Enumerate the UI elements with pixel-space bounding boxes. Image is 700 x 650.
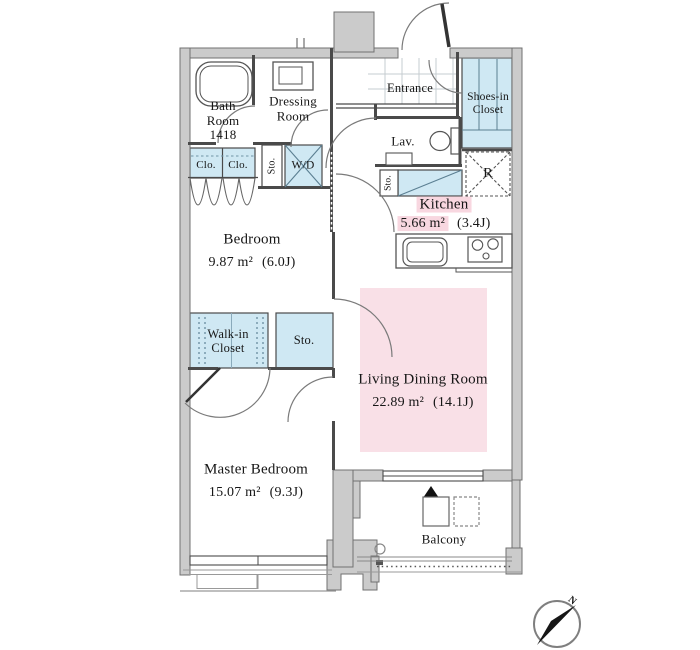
toilet-icon <box>430 128 459 154</box>
lower-balcony-lines <box>180 570 336 591</box>
storage-kitchen-label: Sto. <box>384 175 395 191</box>
kitchen-area-label: 5.66 m²(3.4J) <box>398 216 491 232</box>
master-bedroom-door2-arc <box>288 377 333 422</box>
closet-right-label: Clo. <box>228 159 247 171</box>
master-bedroom-window <box>190 556 327 565</box>
master-bedroom-area-label: 15.07 m²(9.3J) <box>209 485 303 501</box>
right-wall-upper <box>512 48 522 480</box>
living-dining-area-label: 22.89 m²(14.1J) <box>372 395 473 411</box>
master-bedroom-door-leaf <box>186 368 220 402</box>
refrigerator-label: R <box>483 166 493 182</box>
bedroom-label: Bedroom <box>223 232 280 249</box>
lavatory-door-arc <box>326 118 376 168</box>
top-wall-right <box>450 48 522 58</box>
ac-unit-dashed <box>454 497 479 526</box>
balcony-label: Balcony <box>422 533 467 548</box>
floorplan-canvas: Bath Room 1418 Dressing Room Entrance Sh… <box>0 0 700 650</box>
left-wall <box>180 48 190 575</box>
kitchen-label: Kitchen <box>417 197 472 214</box>
vanity-sink-icon <box>273 62 313 90</box>
bedroom-area-label: 9.87 m²(6.0J) <box>209 255 296 271</box>
dressing-room-label: Dressing Room <box>269 94 317 123</box>
shoes-closet-label: Shoes-in Closet <box>467 91 509 117</box>
top-pillar <box>334 12 374 52</box>
top-vent-lines <box>297 38 304 48</box>
washer-dryer-label: W/D <box>292 160 315 173</box>
kitchen-sink-inner <box>407 242 443 262</box>
master-bedroom-label: Master Bedroom <box>204 462 308 479</box>
north-triangle-marker <box>423 486 439 498</box>
closet-left-label: Clo. <box>196 159 215 171</box>
living-dining-label: Living Dining Room <box>358 372 487 389</box>
balcony-top-wall-left <box>353 470 383 481</box>
master-bedroom-door-arc <box>185 368 270 417</box>
entrance-label: Entrance <box>387 81 433 95</box>
living-dining-pink-area <box>360 288 487 452</box>
storage-hall-label: Sto. <box>266 158 277 175</box>
floorplan-drawing <box>0 0 700 650</box>
ac-unit <box>423 497 449 526</box>
closet-bifold-doors <box>190 178 255 205</box>
balcony-window <box>383 471 483 481</box>
balcony-top-wall-right <box>483 470 512 481</box>
bath-room-label: Bath Room 1418 <box>207 99 240 143</box>
compass-icon <box>534 601 580 647</box>
lavatory-label: Lav. <box>391 135 414 150</box>
entrance-door-leaf <box>442 4 449 47</box>
balcony-post-left <box>371 556 379 582</box>
walk-in-closet-label: Walk-in Closet <box>207 327 248 355</box>
lav-counter-icon <box>386 153 412 165</box>
mbr-balcony-wall <box>333 470 353 567</box>
storage-ld-label: Sto. <box>294 333 315 347</box>
